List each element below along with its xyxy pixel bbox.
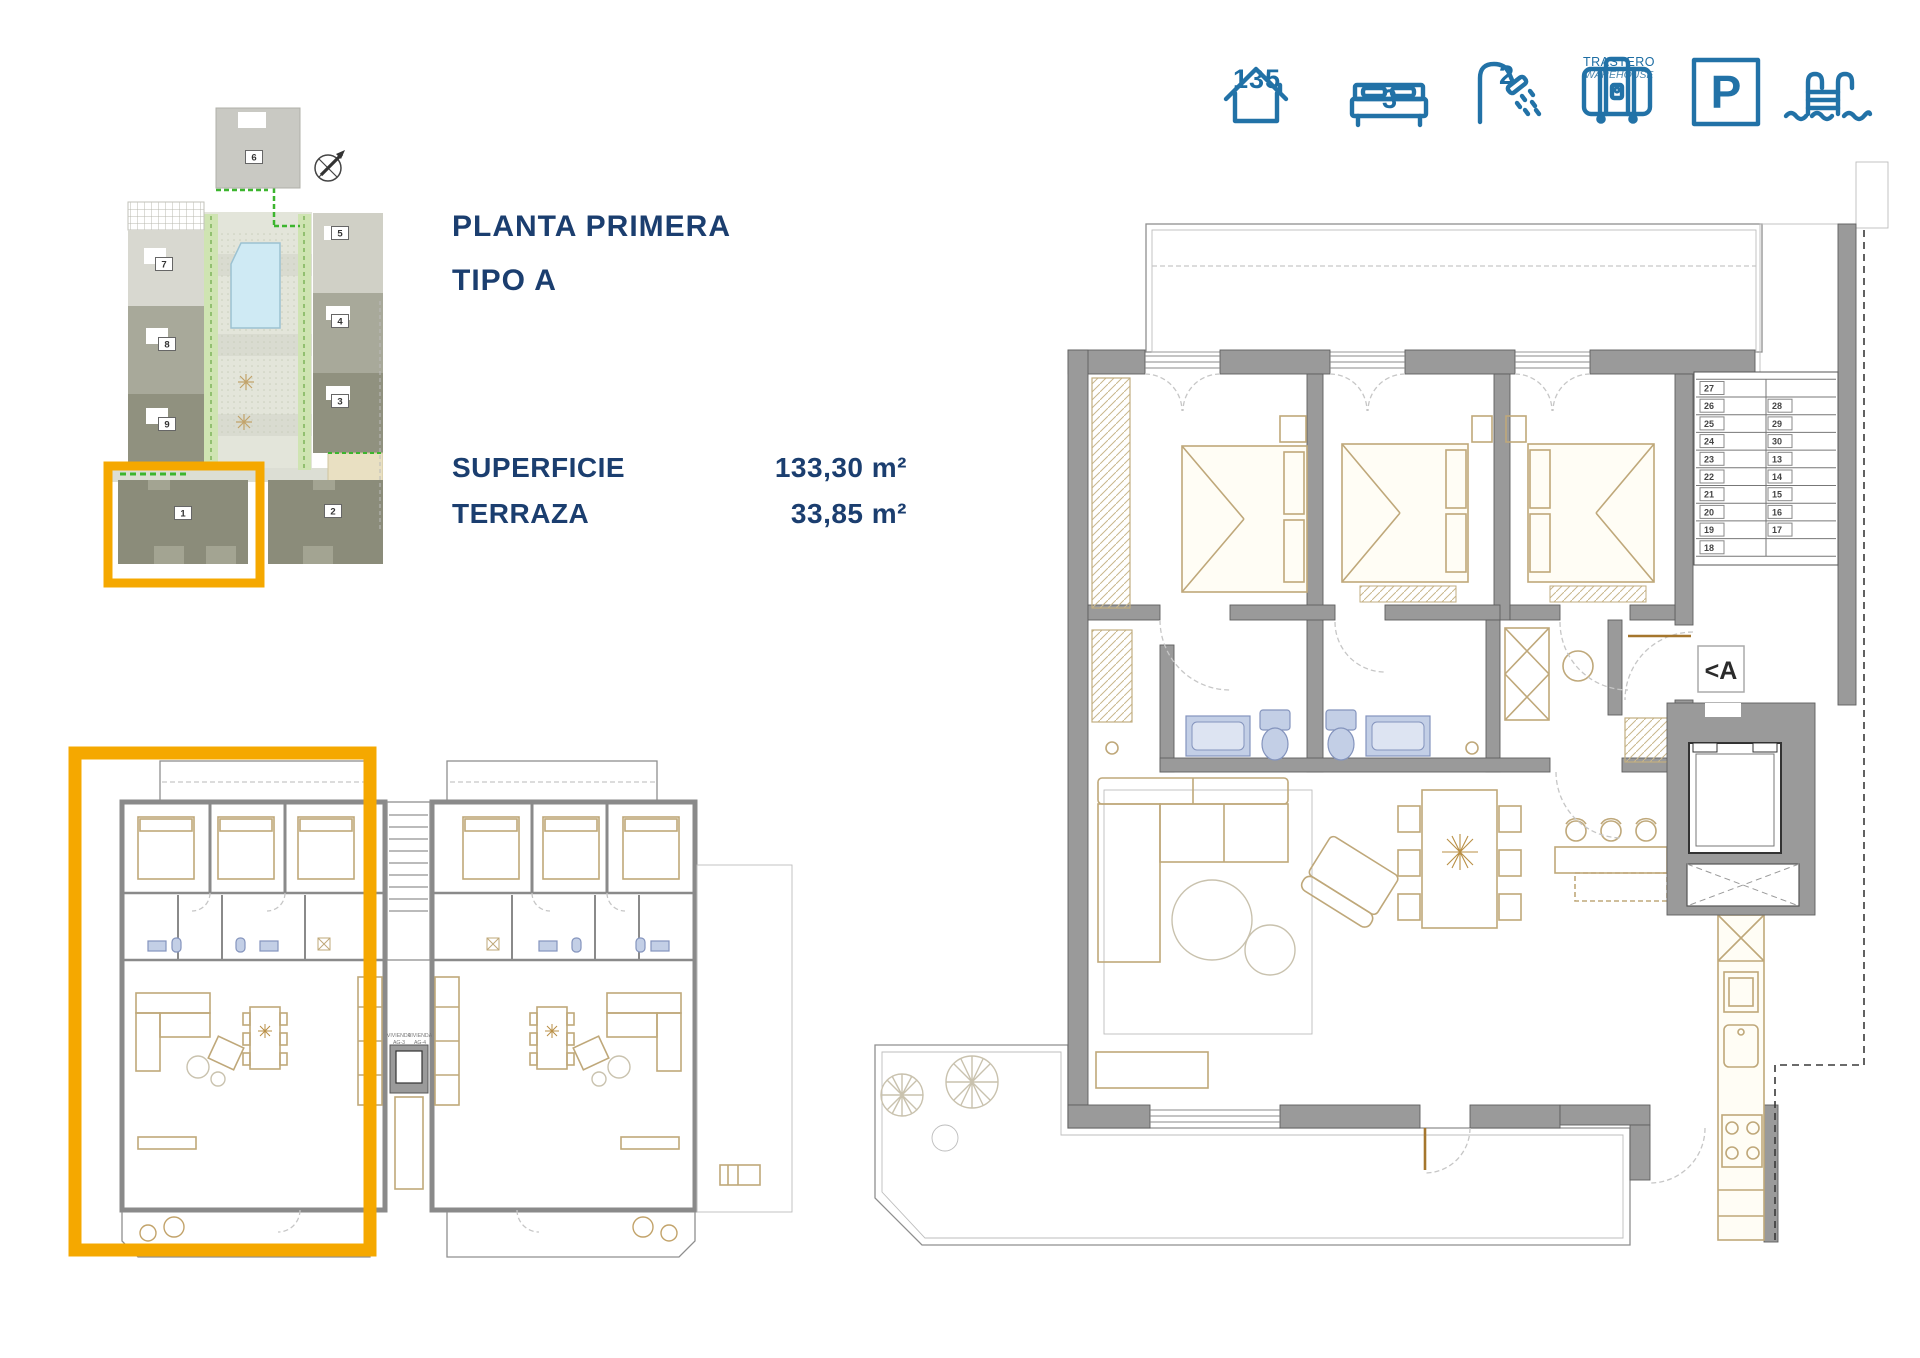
bedroom-windows: [1145, 356, 1590, 411]
feature-area: 135: [1220, 60, 1294, 95]
sofa: [1098, 778, 1288, 962]
page-subtitle: TIPO A: [452, 264, 557, 298]
bedroom-2-bed: [1342, 444, 1468, 582]
site-building-4: [313, 293, 383, 373]
stair-step-number: 14: [1772, 472, 1782, 482]
site-green-strip-right: [298, 214, 311, 470]
svg-text:2: 2: [330, 507, 335, 518]
table-plant: [1442, 834, 1478, 870]
site-unit-number: 4: [332, 315, 349, 328]
overview-terrace-plants: [140, 1217, 184, 1241]
rug: [1104, 790, 1312, 1034]
entrance-label: <A: [1698, 646, 1744, 692]
master-bed: [1182, 416, 1307, 592]
site-pergola: [128, 202, 204, 230]
bathroom-2: [1326, 710, 1478, 760]
svg-text:3: 3: [337, 397, 342, 408]
overview-unit-label: AG-4: [414, 1040, 426, 1046]
site-building-9: [128, 394, 204, 470]
superficie-row: SUPERFICIE 133,30 m²: [452, 452, 907, 484]
compass-icon: [315, 150, 345, 181]
floor-plan-sheet: 135 3 2 TRASTERO WARE: [0, 0, 1920, 1358]
svg-text:6: 6: [251, 153, 256, 164]
site-green-strip-left: [204, 214, 218, 470]
master-bedroom: [1092, 378, 1307, 608]
feature-bedrooms: 3: [1348, 80, 1432, 115]
overview-unit: [122, 761, 385, 1257]
site-pool: [231, 243, 280, 328]
site-unit-number: 9: [159, 418, 176, 431]
stair-step-number: 30: [1772, 437, 1782, 447]
pool-ladder-icon: [1782, 66, 1874, 126]
site-building-5: [313, 213, 383, 293]
kitchen-counter: [1718, 915, 1764, 1240]
shower-icon: [1470, 56, 1542, 128]
side-table: [1245, 925, 1295, 975]
bedroom-2: [1342, 416, 1492, 602]
stair-step-number: 24: [1704, 437, 1714, 447]
terraza-row: TERRAZA 33,85 m²: [452, 498, 907, 530]
master-wardrobe: [1092, 378, 1130, 608]
stair-step-number: 27: [1704, 384, 1714, 394]
site-building-3: [313, 373, 383, 453]
site-unit-number: 5: [332, 227, 349, 240]
stair-step-number: 26: [1704, 401, 1714, 411]
main-top-terrace: [1146, 224, 1762, 352]
stair-step-number: 18: [1704, 543, 1714, 553]
terraza-label: TERRAZA: [452, 498, 589, 530]
terrace-sliding-door: [1150, 1110, 1280, 1122]
suitcase-icon: [1574, 52, 1660, 124]
parking-letter: P: [1711, 66, 1742, 118]
stair-step-number: 21: [1704, 490, 1714, 500]
site-unit-number: 7: [156, 258, 173, 271]
stair-step-number: 28: [1772, 401, 1782, 411]
svg-text:<A: <A: [1705, 657, 1738, 685]
bathroom-1: [1186, 710, 1290, 760]
dressing-nook: [1092, 630, 1132, 754]
sideboard: [1096, 1052, 1208, 1088]
bathroom-3: [1505, 628, 1593, 720]
stair-step-number: 15: [1772, 490, 1782, 500]
svg-text:7: 7: [161, 260, 166, 271]
stair-step-number: 23: [1704, 454, 1714, 464]
site-plan-thumbnail: 6 7 5 8 4 9 3 1 2: [88, 76, 383, 591]
stair-step-number: 16: [1772, 507, 1782, 517]
parking-icon: P: [1688, 54, 1764, 130]
elevator: [1667, 703, 1815, 915]
stair-step-number: 19: [1704, 525, 1714, 535]
stair-step-number: 29: [1772, 419, 1782, 429]
entry-closet: [1625, 718, 1673, 762]
overview-right-terrace: [697, 865, 792, 1212]
terrace-plants: [881, 1056, 998, 1151]
overview-floor-plan: VIVIENDA AG-3 VIVIENDA AG-4: [60, 745, 800, 1275]
overview-unit-label: AG-3: [393, 1040, 405, 1046]
house-icon: [1220, 60, 1292, 128]
svg-text:1: 1: [180, 509, 186, 520]
overview-stair-core: [387, 802, 430, 1189]
breakfast-bar: [1555, 847, 1667, 873]
site-unit-number: 2: [325, 505, 342, 518]
site-unit-number: 8: [159, 338, 176, 351]
stair-step-number: 20: [1704, 507, 1714, 517]
bedroom-2-wardrobe: [1360, 586, 1456, 602]
overview-unit-label: VIVIENDA: [408, 1033, 433, 1039]
svg-text:5: 5: [337, 229, 343, 240]
feature-bathrooms: 2: [1470, 56, 1544, 91]
staircase: 272625242322212019182829301314151617: [1694, 372, 1838, 565]
bed-icon: [1348, 80, 1430, 130]
site-unit-number: 6: [246, 151, 263, 164]
main-floor-plan: 272625242322212019182829301314151617: [860, 160, 1920, 1260]
main-bottom-terrace: [875, 1045, 1630, 1245]
bedroom-3: [1506, 416, 1654, 602]
bedroom-3-wardrobe: [1550, 586, 1646, 602]
dining-area: [1398, 790, 1521, 928]
stair-step-number: 25: [1704, 419, 1714, 429]
site-unit-number: 1: [175, 507, 192, 520]
page-title: PLANTA PRIMERA: [452, 210, 731, 244]
living-room: [1096, 778, 1400, 1088]
svg-text:8: 8: [164, 340, 169, 351]
bedroom-3-bed: [1528, 444, 1654, 582]
feature-storage: TRASTERO WAREHOUSE: [1574, 52, 1664, 81]
superficie-label: SUPERFICIE: [452, 452, 625, 484]
stair-step-number: 22: [1704, 472, 1714, 482]
armchair: [1299, 835, 1400, 930]
stair-step-number: 17: [1772, 525, 1782, 535]
svg-text:4: 4: [337, 317, 343, 328]
svg-text:9: 9: [164, 420, 169, 431]
stair-step-number: 13: [1772, 454, 1782, 464]
site-unit-number: 3: [332, 395, 349, 408]
coffee-table: [1172, 880, 1252, 960]
